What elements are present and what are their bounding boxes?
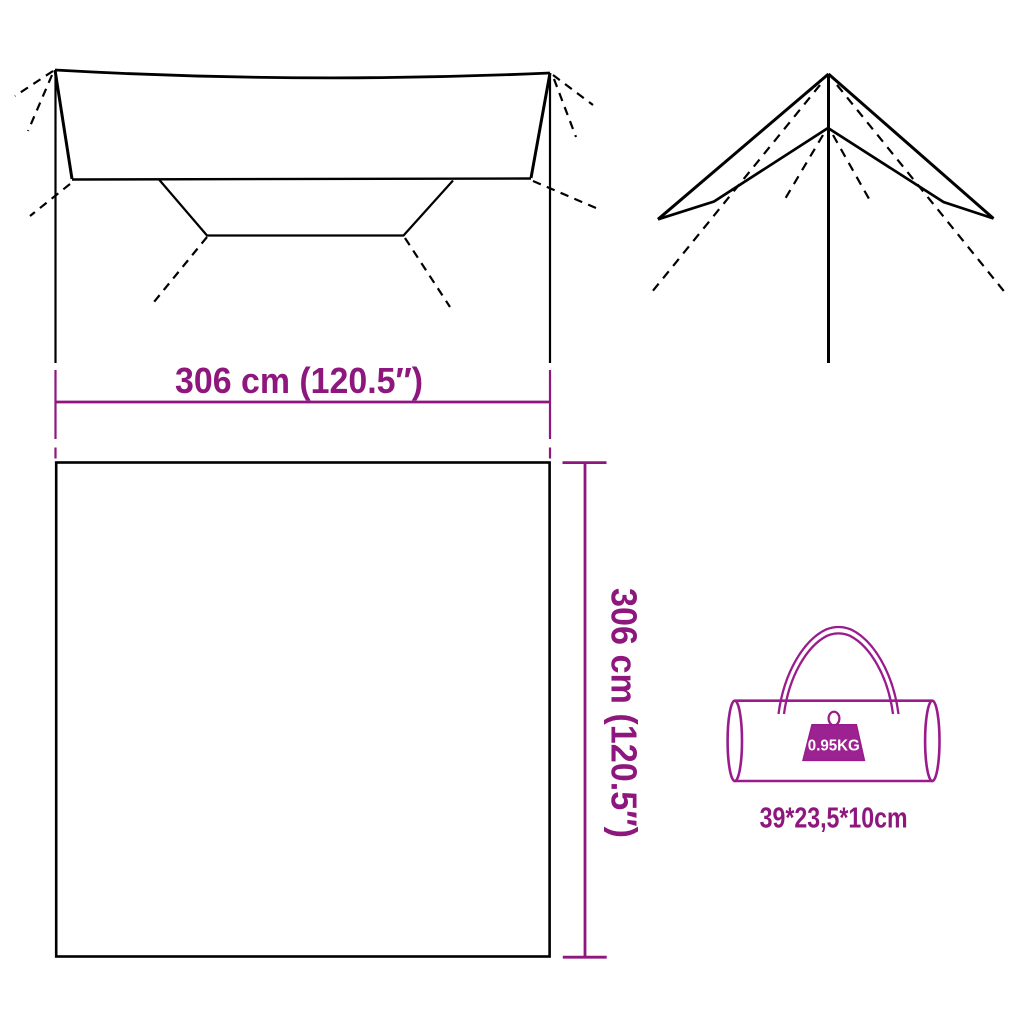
svg-text:0.95KG: 0.95KG — [808, 738, 860, 755]
svg-text:306 cm (120.5″): 306 cm (120.5″) — [175, 360, 423, 401]
svg-text:306 cm (120.5″): 306 cm (120.5″) — [604, 588, 645, 838]
svg-text:39*23,5*10cm: 39*23,5*10cm — [760, 803, 908, 835]
